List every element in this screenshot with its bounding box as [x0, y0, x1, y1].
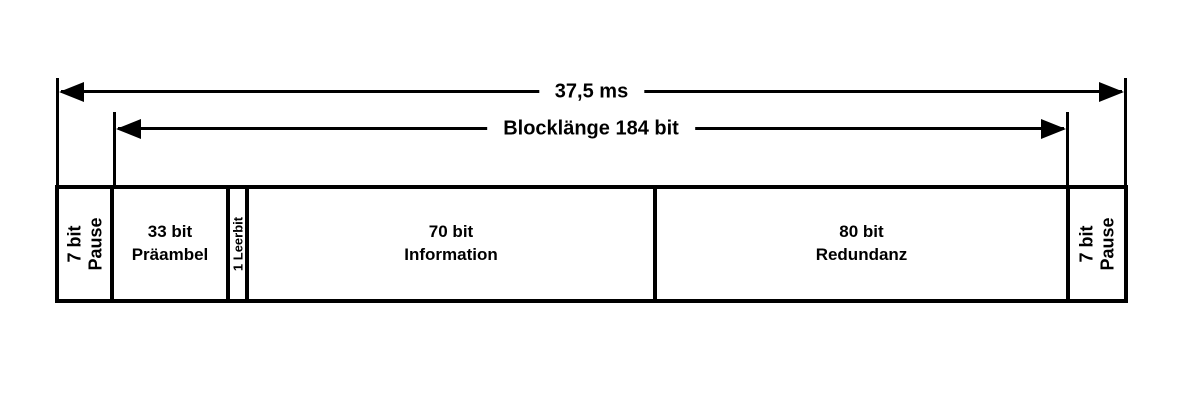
extension-line-inner-right	[1066, 112, 1069, 185]
segment-name-label: Präambel	[132, 245, 209, 264]
segment-bits-label: 80 bit	[839, 222, 883, 241]
segment-label-information: 70 bit Information	[404, 221, 498, 267]
frame-timing-diagram: 37,5 ms Blocklänge 184 bit 7 bit Pause 3…	[0, 0, 1200, 400]
segment-label-redundanz: 80 bit Redundanz	[816, 221, 908, 267]
arrowhead-left-icon	[59, 82, 84, 102]
segment-name-label: Information	[404, 245, 498, 264]
segment-pause-left: 7 bit Pause	[59, 189, 114, 299]
extension-line-inner-left	[113, 112, 116, 185]
arrowhead-right-icon	[1041, 119, 1066, 139]
arrowhead-left-icon	[116, 119, 141, 139]
block-length-arrow: Blocklänge 184 bit	[116, 119, 1066, 139]
arrowhead-right-icon	[1099, 82, 1124, 102]
segment-name-label: 1 Leerbit	[230, 217, 245, 271]
segment-label-pause-left: 7 bit Pause	[64, 217, 105, 270]
segment-praeambel: 33 bit Präambel	[114, 189, 230, 299]
extension-line-outer-left	[56, 78, 59, 185]
segment-name-label: Redundanz	[816, 245, 908, 264]
block-length-label: Blocklänge 184 bit	[487, 118, 695, 141]
extension-line-outer-right	[1124, 78, 1127, 185]
total-duration-arrow: 37,5 ms	[59, 82, 1124, 102]
segment-bits-label: 70 bit	[429, 222, 473, 241]
segment-pause-right: 7 bit Pause	[1070, 189, 1124, 299]
segment-label-leerbit: 1 Leerbit	[231, 217, 244, 271]
frame-structure-box: 7 bit Pause 33 bit Präambel 1 Leerbit 70…	[55, 185, 1128, 303]
segment-name-label: Pause	[1097, 217, 1117, 270]
segment-label-pause-right: 7 bit Pause	[1076, 217, 1117, 270]
segment-name-label: Pause	[85, 217, 105, 270]
segment-bits-label: 7 bit	[1076, 225, 1096, 262]
segment-information: 70 bit Information	[249, 189, 657, 299]
segment-bits-label: 33 bit	[148, 222, 192, 241]
segment-leerbit: 1 Leerbit	[230, 189, 249, 299]
segment-bits-label: 7 bit	[64, 225, 84, 262]
total-duration-label: 37,5 ms	[539, 81, 644, 104]
segment-redundanz: 80 bit Redundanz	[657, 189, 1070, 299]
segment-label-praeambel: 33 bit Präambel	[132, 221, 209, 267]
